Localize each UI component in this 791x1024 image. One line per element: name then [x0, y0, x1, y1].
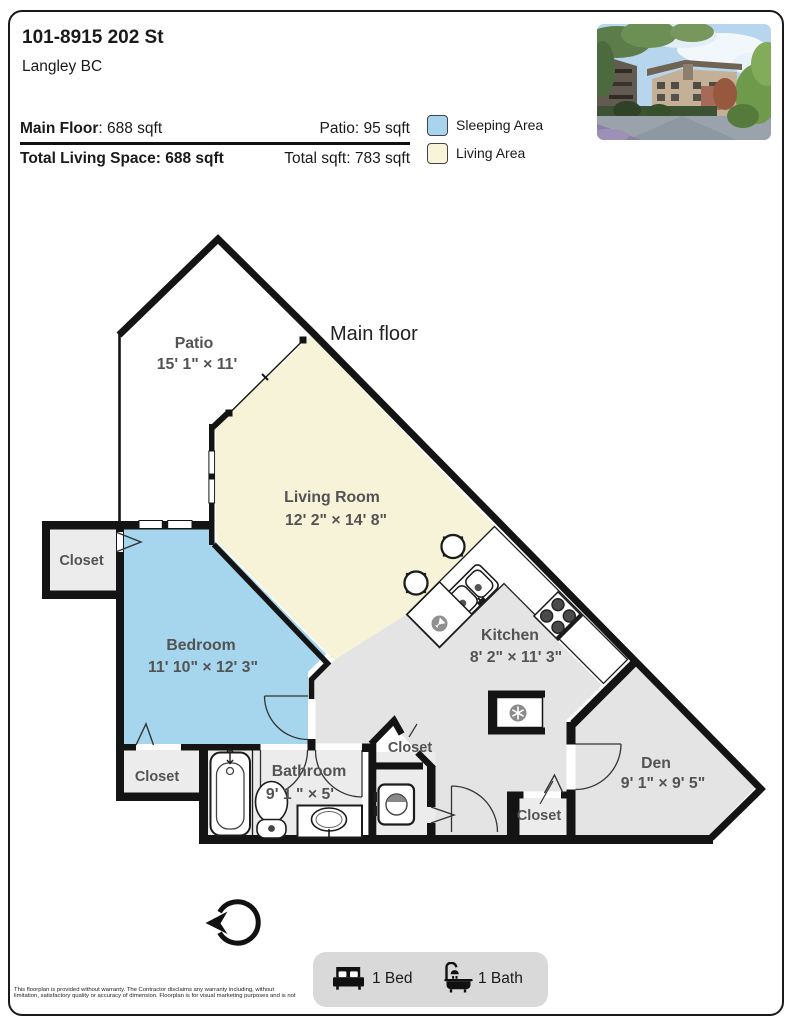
- svg-text:Closet: Closet: [59, 553, 103, 569]
- svg-text:Kitchen: Kitchen: [481, 627, 539, 644]
- svg-text:8' 2" × 11' 3": 8' 2" × 11' 3": [470, 649, 562, 666]
- svg-text:Bathroom: Bathroom: [272, 763, 347, 780]
- svg-text:9' 1 " × 5': 9' 1 " × 5': [266, 786, 334, 803]
- svg-text:Patio: Patio: [175, 335, 214, 352]
- svg-text:15' 1" × 11': 15' 1" × 11': [157, 356, 237, 373]
- svg-text:Bedroom: Bedroom: [166, 637, 235, 654]
- svg-text:Main floor: Main floor: [330, 323, 418, 345]
- svg-text:9' 1" × 9' 5": 9' 1" × 9' 5": [621, 775, 705, 792]
- svg-text:Closet: Closet: [517, 808, 561, 824]
- svg-text:12' 2" × 14' 8": 12' 2" × 14' 8": [285, 512, 387, 529]
- svg-text:11' 10" × 12' 3": 11' 10" × 12' 3": [148, 659, 258, 676]
- svg-text:Closet: Closet: [135, 769, 179, 785]
- svg-text:Den: Den: [641, 755, 671, 772]
- svg-text:Living Room: Living Room: [284, 489, 380, 506]
- svg-text:Closet: Closet: [388, 740, 432, 756]
